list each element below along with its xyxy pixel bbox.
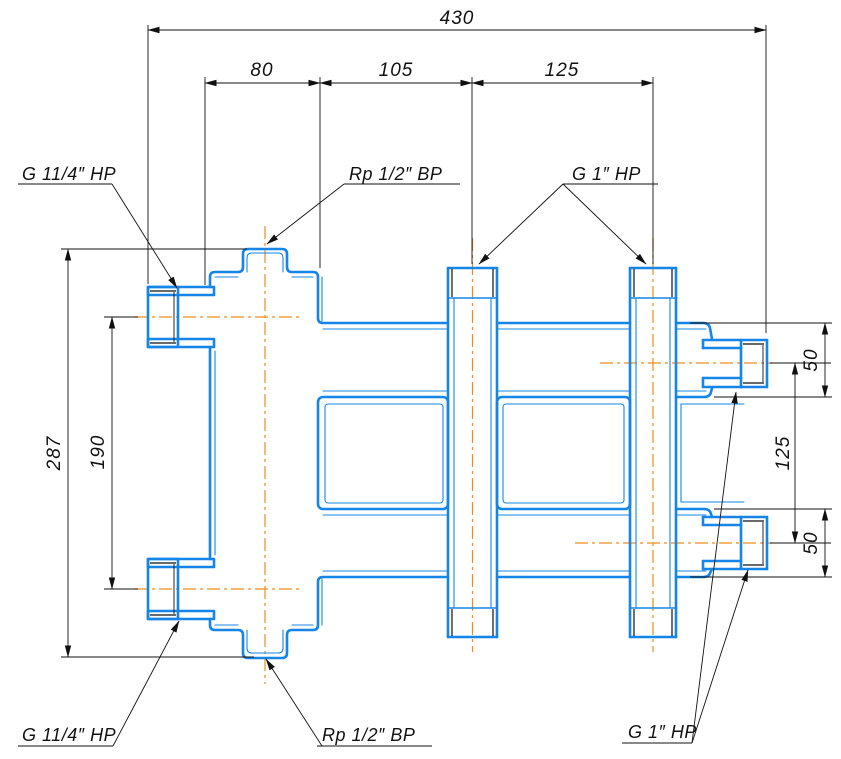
label-conn-top-left: G 11/4″ НР [22,164,116,184]
label-conn-top-center: Rp 1/2″ ВР [349,164,442,184]
dim-right-boss-spacing: 125 [773,436,794,471]
dim-left-boss-spacing: 190 [88,435,109,470]
dimension-lines [68,30,825,657]
boss-top-right [703,340,767,387]
boss-bottom-left [148,559,214,619]
dim-body-width: 80 [250,60,273,81]
connection-labels: G 11/4″ НР Rp 1/2″ ВР G 1″ НР G 11/4″ НР… [22,164,697,745]
dim-pipe1-offset: 105 [379,60,414,81]
label-conn-top-right: G 1″ НР [572,164,641,184]
dim-overall-width: 430 [440,8,475,29]
manifold-drawing: 430 80 105 125 287 190 50 125 50 G 11/4″… [0,0,841,759]
part-outline [148,249,767,658]
label-conn-bottom-right: G 1″ НР [628,722,697,742]
dimension-labels: 430 80 105 125 287 190 50 125 50 [44,8,822,555]
label-conn-bottom-center: Rp 1/2″ ВР [322,725,415,745]
dim-overall-height: 287 [44,435,65,471]
boss-top-left [148,287,214,347]
dim-pipe-spacing: 125 [545,60,580,81]
dim-top-chamber-height: 50 [801,348,822,371]
thread-lines [150,269,764,636]
inner-edges [215,253,744,653]
dim-bottom-chamber-height: 50 [801,531,822,554]
label-conn-bottom-left: G 11/4″ НР [22,725,116,745]
drawing-canvas: 430 80 105 125 287 190 50 125 50 G 11/4″… [0,0,841,759]
